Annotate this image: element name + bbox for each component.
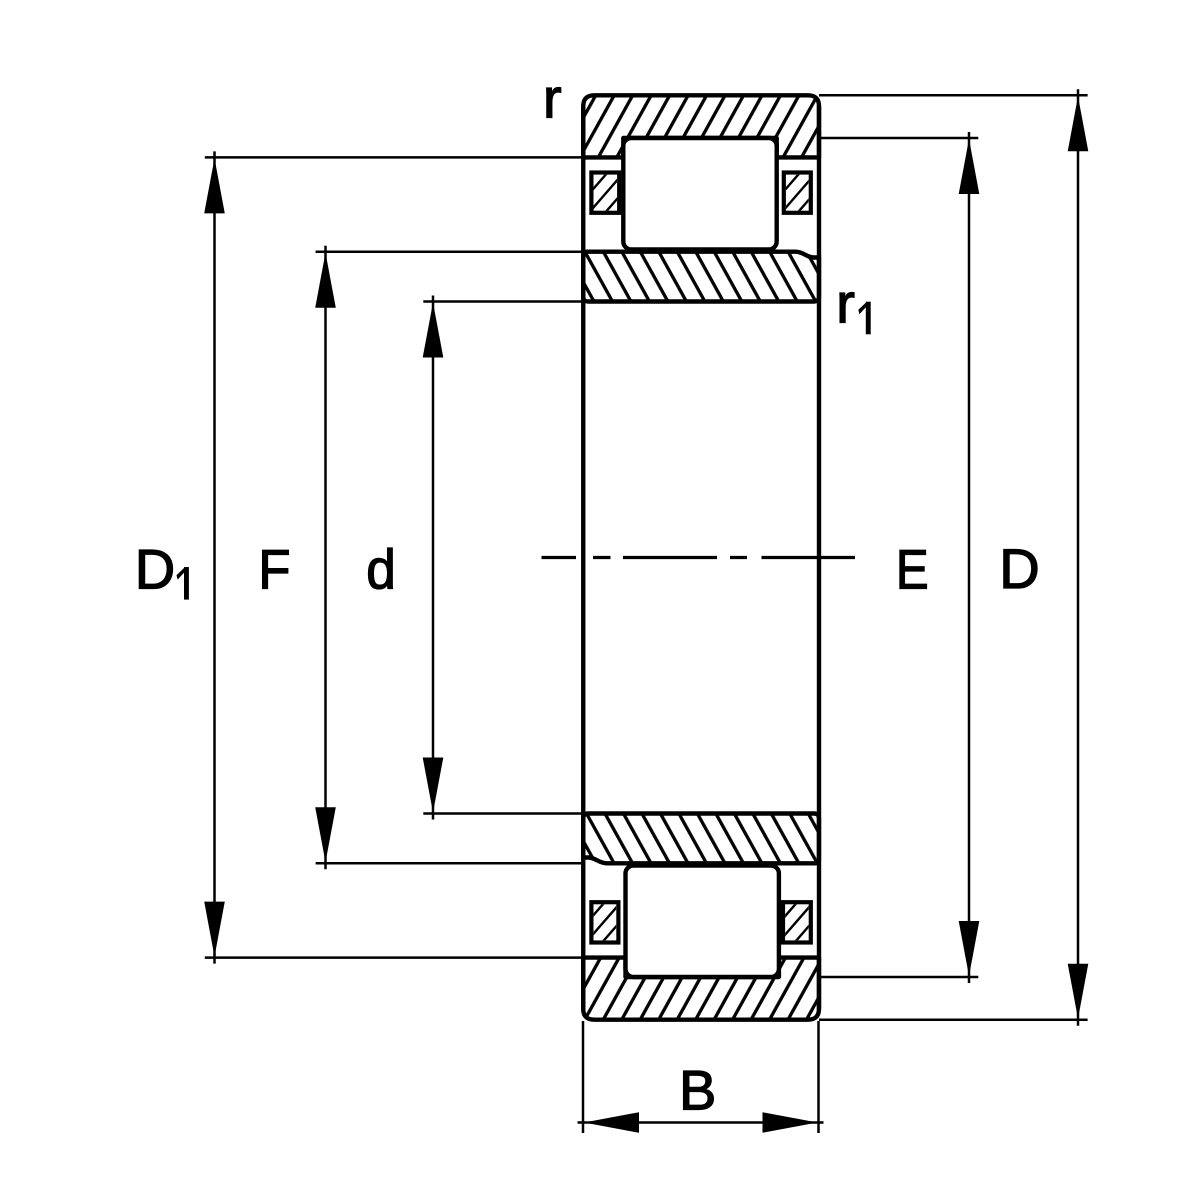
svg-text:D: D bbox=[999, 537, 1039, 600]
svg-text:d: d bbox=[366, 537, 396, 600]
svg-text:r: r bbox=[543, 66, 562, 129]
svg-text:D: D bbox=[135, 537, 175, 600]
svg-text:r: r bbox=[836, 272, 855, 335]
svg-text:F: F bbox=[258, 537, 290, 600]
svg-text:E: E bbox=[896, 537, 929, 600]
svg-text:B: B bbox=[679, 1059, 716, 1122]
